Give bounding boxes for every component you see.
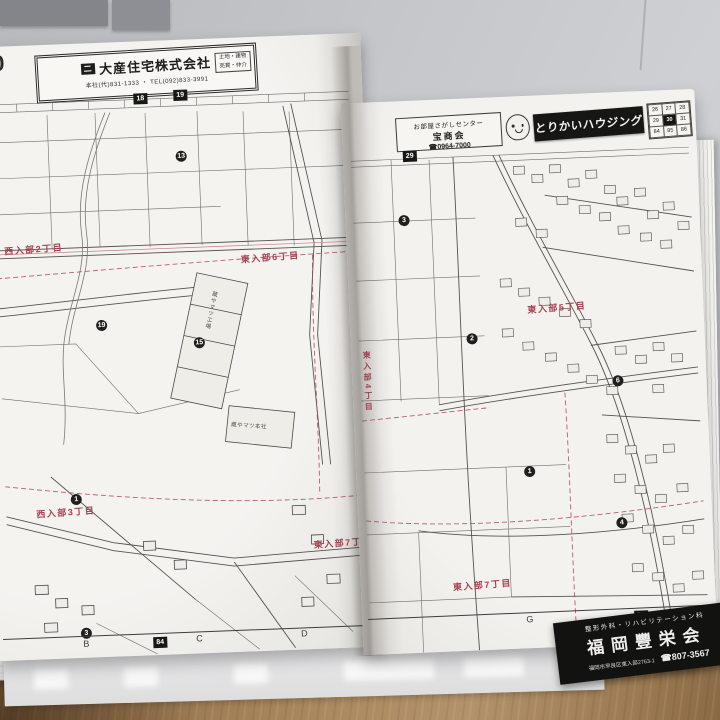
- locator-cell: 84: [650, 126, 664, 138]
- page-number: 30: [0, 50, 6, 77]
- clinic-address: 福岡市早良区東入部2763-1: [588, 656, 655, 672]
- wall-object-left: [0, 0, 108, 26]
- right-map-linework: [341, 89, 718, 655]
- locator-cell: 85: [663, 125, 677, 137]
- photo-of-open-map-book: 30 二 大産住宅株式会社 本社(代)831-1333 ・ TEL(092)83…: [0, 0, 720, 720]
- left-map-page: 30 二 大産住宅株式会社 本社(代)831-1333 ・ TEL(092)83…: [0, 33, 384, 661]
- ghost-text-blob: [234, 663, 269, 684]
- wall-seam: [640, 0, 647, 70]
- ghost-text-blob: [34, 669, 69, 690]
- ad-corner-note: 土地・建物 売買・仲介: [214, 51, 251, 73]
- company-logo-icon: 二: [81, 63, 96, 75]
- page-locator-grid: 26 27 28 29 30 31 84 85 86: [646, 100, 693, 139]
- ad-note-line2: 売買・仲介: [216, 61, 250, 72]
- right-map-page: お部屋さがしセンター 宝商会 ☎0964-7000 とりかいハウジング 26 2…: [341, 89, 718, 655]
- adjacent-page-link: 29: [403, 151, 417, 163]
- wall-object-right: [112, 0, 170, 30]
- adjacent-page-link: 18: [133, 93, 147, 105]
- ghost-text-blob: [464, 656, 525, 678]
- adjacent-page-link: 84: [153, 637, 167, 649]
- locator-cell: 86: [677, 124, 691, 136]
- grid-letter: D: [301, 628, 308, 638]
- adjacent-page-link: 19: [173, 90, 187, 102]
- grid-letter: C: [196, 633, 203, 643]
- ghost-text-blob: [124, 666, 159, 687]
- left-map-linework: [0, 33, 384, 661]
- grid-letter: G: [526, 614, 533, 624]
- grid-letter: B: [83, 639, 89, 649]
- ghost-text-blob: [344, 658, 435, 681]
- ad-banner-text: とりかいハウジング: [535, 112, 643, 136]
- right-top-ad-box: お部屋さがしセンター 宝商会 ☎0964-7000: [395, 112, 503, 152]
- clinic-phone: ☎807-3567: [660, 647, 710, 664]
